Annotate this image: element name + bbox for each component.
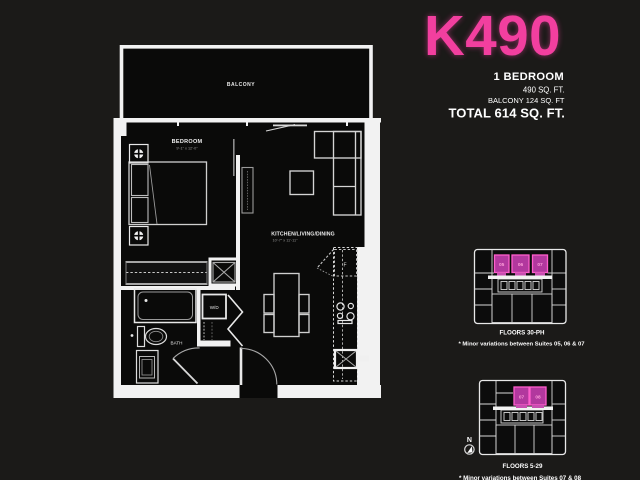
svg-text:BALCONY 124 SQ. FT: BALCONY 124 SQ. FT [488, 96, 565, 105]
svg-text:BATH: BATH [171, 341, 183, 346]
svg-text:1 BEDROOM: 1 BEDROOM [494, 71, 564, 83]
svg-text:FLOORS 30-PH: FLOORS 30-PH [499, 330, 545, 337]
svg-text:490 SQ. FT.: 490 SQ. FT. [523, 86, 565, 95]
svg-text:N: N [467, 437, 472, 444]
svg-text:BEDROOM: BEDROOM [172, 139, 203, 145]
svg-text:06: 06 [518, 262, 524, 268]
svg-text:07: 07 [519, 395, 525, 401]
svg-text:05: 05 [499, 262, 505, 268]
svg-text:FLOORS 5-29: FLOORS 5-29 [503, 463, 543, 470]
svg-text:10'-7" x 11'-11": 10'-7" x 11'-11" [273, 239, 299, 243]
svg-text:F: F [343, 263, 346, 269]
svg-text:07: 07 [537, 262, 543, 268]
svg-text:BALCONY: BALCONY [227, 82, 255, 88]
svg-text:9'-1" x 12'-0": 9'-1" x 12'-0" [176, 147, 198, 151]
svg-text:* Minor variations between Sui: * Minor variations between Suites 07 & 0… [459, 475, 582, 480]
svg-text:TOTAL 614 SQ. FT.: TOTAL 614 SQ. FT. [448, 106, 565, 121]
svg-text:W/D: W/D [210, 305, 220, 310]
svg-text:K490: K490 [424, 4, 561, 67]
svg-text:KITCHEN/LIVING/DINING: KITCHEN/LIVING/DINING [271, 232, 335, 238]
svg-text:* Minor variations between Sui: * Minor variations between Suites 05, 06… [458, 342, 585, 348]
svg-text:08: 08 [535, 395, 541, 401]
